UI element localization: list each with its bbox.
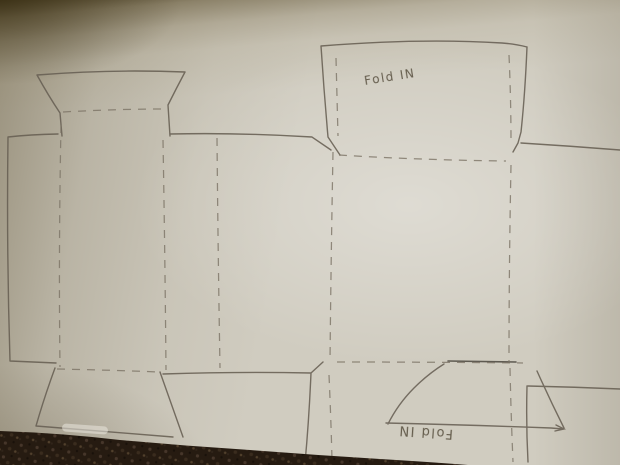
dashed-fold-lines xyxy=(57,55,523,462)
right-top-flap xyxy=(321,41,527,155)
fold-left-strip-left xyxy=(59,125,61,367)
fold-left-strip-right xyxy=(163,140,166,370)
middle-top-edge xyxy=(170,134,331,150)
fold-left-bottom-flap-top xyxy=(57,369,159,372)
fold-right-panel-right-lower xyxy=(510,368,513,462)
bottom-right-corner-panel xyxy=(527,386,620,462)
right-tab-top-edge xyxy=(521,143,620,150)
fold-top-flap-bottom xyxy=(339,155,506,161)
fold-middle-left xyxy=(217,138,220,368)
box-template-drawing xyxy=(0,0,620,465)
left-bottom-flap xyxy=(36,368,183,437)
fold-right-panel-left-lower xyxy=(329,375,332,460)
right-bottom-flap xyxy=(386,364,564,429)
left-panel-outline xyxy=(8,134,58,363)
fold-top-flap-right-inner xyxy=(509,55,511,143)
fold-right-panel-left xyxy=(330,152,333,362)
photo-of-hand-drawn-box-template: Fold IN Fold IN xyxy=(0,0,620,465)
fold-spool-top xyxy=(63,109,166,112)
fold-right-panel-right xyxy=(509,165,511,362)
fold-top-flap-left-inner xyxy=(336,58,338,136)
left-top-flap xyxy=(37,71,185,136)
solid-cut-lines xyxy=(8,41,620,463)
